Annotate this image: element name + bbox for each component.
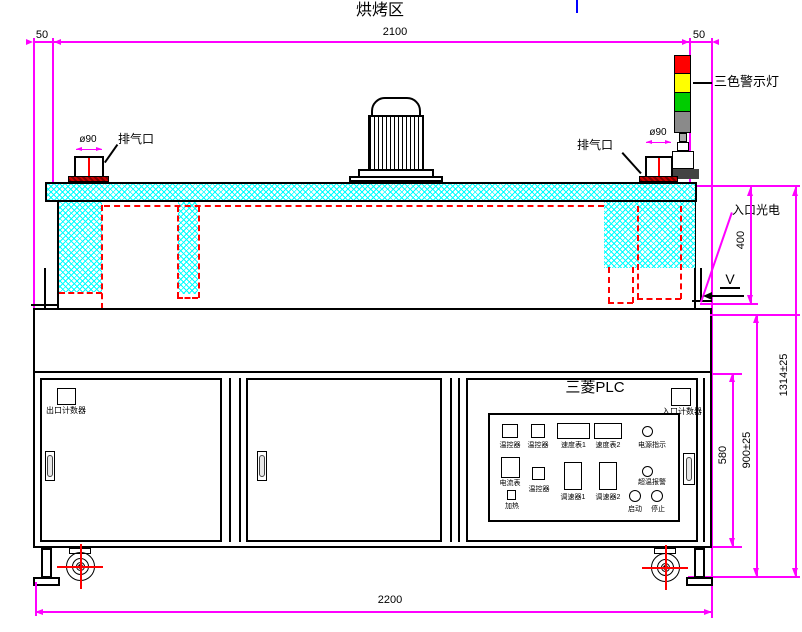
speed-meter-2 xyxy=(594,423,622,439)
heater-dash-right-bottom xyxy=(637,298,681,300)
cabinet-post-line xyxy=(703,378,705,542)
exit-counter-label: 出口计数器 xyxy=(41,407,91,416)
dim-line-top xyxy=(33,41,712,43)
dim-arrow xyxy=(682,39,689,45)
dim-table-height: 900±25 xyxy=(741,425,753,475)
entry-sensor-label: 入口光电 xyxy=(732,204,780,217)
temp-controller-3-label: 温控器 xyxy=(519,486,559,494)
plc-title: 三菱PLC xyxy=(545,380,645,397)
ext-line-chamber-left xyxy=(52,38,54,186)
dim-arrow xyxy=(729,374,735,382)
belt-direction-symbol: V xyxy=(720,272,740,289)
belt-direction-arrow-line xyxy=(710,295,744,297)
temp-controller-1 xyxy=(502,424,518,438)
heater-dash-mid-bottom xyxy=(177,297,198,299)
dim-arrow xyxy=(704,609,712,615)
insulation-left-wall xyxy=(59,202,102,292)
heater-dash-slot-bottom xyxy=(608,302,633,304)
dim-arrow xyxy=(729,538,735,546)
stop-button xyxy=(651,490,663,502)
exhaust-left-diameter: ø90 xyxy=(73,134,103,145)
dim-arrow xyxy=(792,568,798,576)
warning-light-leader xyxy=(693,82,712,84)
overtemp-alarm-lamp xyxy=(642,466,653,477)
ext-line-left xyxy=(33,38,35,308)
overtemp-alarm-label: 超温报警 xyxy=(628,479,676,487)
cabinet-post-line xyxy=(450,378,452,542)
door-handle-middle-grip xyxy=(259,455,265,477)
caster-right-crosshair-v xyxy=(665,545,667,590)
dim-oven-width: 2100 xyxy=(355,26,435,38)
ammeter xyxy=(501,457,520,478)
dim-line-400 xyxy=(750,187,752,303)
dim-cabinet-height: 580 xyxy=(717,437,729,473)
dim-arrow xyxy=(54,39,61,45)
heater-dash-mid-a xyxy=(177,206,179,298)
cabinet-post-line xyxy=(239,378,241,542)
warning-light-red-segment xyxy=(674,55,691,74)
dim-total-height: 1314±25 xyxy=(778,347,790,403)
dim-line-580 xyxy=(732,373,734,546)
heater-dash-right-a xyxy=(637,206,639,299)
ext-line-chamber-top xyxy=(697,185,800,187)
dim-arrow xyxy=(753,315,759,323)
leveling-foot-right-pad xyxy=(686,577,713,586)
dim-arrow xyxy=(26,39,33,45)
ext-line-cabinet-bottom xyxy=(712,546,742,548)
dim-arrow xyxy=(792,188,798,196)
exhaust-left-leader xyxy=(104,144,118,163)
ext-line-cabinet-top xyxy=(712,373,742,375)
speed-meter-2-label: 速度表2 xyxy=(588,442,628,450)
dim-arrow xyxy=(747,295,753,303)
warning-light-neck xyxy=(677,142,689,151)
entry-counter-box xyxy=(671,388,691,406)
power-indicator-lamp xyxy=(642,426,653,437)
stop-button-label: 停止 xyxy=(645,506,671,514)
temp-controller-3 xyxy=(532,467,545,480)
cabinet-door-middle xyxy=(246,378,442,542)
ext-line-belt xyxy=(700,303,758,305)
exhaust-right-label: 排气口 xyxy=(577,139,613,152)
cabinet-post-line xyxy=(458,378,460,542)
warning-light-stem xyxy=(679,133,687,142)
warning-light-yellow-segment xyxy=(674,73,691,93)
start-button xyxy=(629,490,641,502)
heater-dash-slot-b xyxy=(632,267,634,303)
heating-indicator-label: 加热 xyxy=(494,503,530,511)
cabinet-post-line xyxy=(229,378,231,542)
blue-mark xyxy=(576,0,578,13)
caster-left-crosshair-v xyxy=(80,544,82,589)
exhaust-right-diameter: ø90 xyxy=(643,127,673,138)
dim-arrow xyxy=(646,140,652,144)
dim-arrow xyxy=(665,140,671,144)
belt-exit-lip xyxy=(31,304,57,306)
door-handle-left-grip xyxy=(47,455,53,477)
dim-line-1314 xyxy=(795,187,797,576)
exhaust-right-leader xyxy=(622,152,642,174)
leveling-foot-left-stem xyxy=(41,548,52,578)
dim-arrow xyxy=(712,39,719,45)
belt-direction-arrow-head xyxy=(703,292,712,300)
power-indicator-label: 电源指示 xyxy=(628,442,676,450)
leveling-foot-left-pad xyxy=(33,577,60,586)
dim-line-900 xyxy=(756,314,758,576)
door-handle-right-grip xyxy=(686,457,692,481)
belt-exit-bracket xyxy=(44,268,46,308)
dim-arrow xyxy=(753,568,759,576)
leveling-foot-right-stem xyxy=(694,548,705,578)
insulation-mid-column xyxy=(178,202,198,294)
dim-arrow xyxy=(96,147,102,151)
drawing-title: 烘烤区 xyxy=(325,2,435,20)
speed-meter-1 xyxy=(557,423,590,439)
heater-dash-slot-a xyxy=(608,267,610,303)
temp-controller-2 xyxy=(531,424,545,438)
oven-engineering-drawing: 烘烤区 50 2100 50 三色警示灯 ø90 排气口 排气口 ø90 xyxy=(0,0,802,632)
motor-body xyxy=(368,115,424,171)
warning-light-mount xyxy=(672,151,694,169)
heating-indicator xyxy=(507,490,516,500)
dim-arrow xyxy=(747,188,753,196)
speed-regulator-2 xyxy=(599,462,617,490)
exhaust-left-label: 排气口 xyxy=(118,133,154,146)
heater-dash-top xyxy=(104,205,604,207)
speed-regulator-1-label: 调速器1 xyxy=(554,494,592,502)
warning-light-body xyxy=(674,111,691,133)
dim-chamber-height: 400 xyxy=(735,222,747,258)
chamber-top-insulation xyxy=(45,182,697,202)
dim-line-2200 xyxy=(35,611,712,613)
speed-regulator-2-label: 调速器2 xyxy=(589,494,627,502)
warning-light-green-segment xyxy=(674,92,691,112)
exit-counter-box xyxy=(57,388,76,405)
dim-arrow xyxy=(76,147,82,151)
dim-total-width: 2200 xyxy=(350,594,430,606)
warning-light-label: 三色警示灯 xyxy=(714,75,779,89)
heater-dash-left-bottom xyxy=(59,292,102,294)
heater-dash-mid-b xyxy=(198,206,200,298)
heater-dash-right-b xyxy=(680,206,682,299)
speed-regulator-1 xyxy=(564,462,582,490)
cabinet-top-line xyxy=(33,371,712,373)
dim-arrow xyxy=(35,609,43,615)
